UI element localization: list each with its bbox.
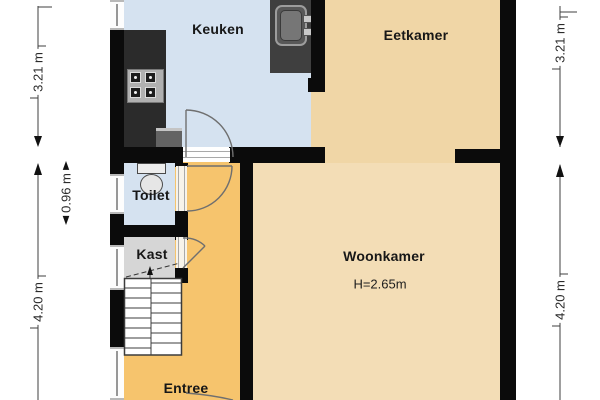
kast-label: Kast bbox=[136, 246, 167, 262]
toilet-door-swing bbox=[187, 166, 232, 211]
woonkamer-height-note: H=2.65m bbox=[353, 277, 406, 292]
woonkamer-label: Woonkamer bbox=[343, 248, 425, 264]
eetkamer-label: Eetkamer bbox=[384, 27, 449, 43]
dim-left-toilet: 0.96 m bbox=[59, 170, 74, 216]
stairs-walkline bbox=[126, 263, 180, 279]
staircase-icon bbox=[124, 278, 182, 355]
toilet-label: Toilet bbox=[132, 187, 170, 203]
dimension-arrows bbox=[34, 136, 564, 225]
entree-label: Entree bbox=[164, 380, 209, 396]
dim-left-top: 3.21 m bbox=[31, 49, 46, 95]
keuken-label: Keuken bbox=[192, 21, 244, 37]
dimension-lines bbox=[30, 6, 577, 400]
keuken-door-swing bbox=[186, 110, 233, 157]
dim-left-bottom: 4.20 m bbox=[31, 279, 46, 325]
dim-right-top: 3.21 m bbox=[553, 20, 568, 66]
dim-right-bottom: 4.20 m bbox=[553, 277, 568, 323]
plan-linework bbox=[0, 0, 600, 400]
kast-door-swing bbox=[183, 238, 205, 268]
floor-plan: Keuken Eetkamer Toilet Kast Woonkamer H=… bbox=[0, 0, 600, 400]
